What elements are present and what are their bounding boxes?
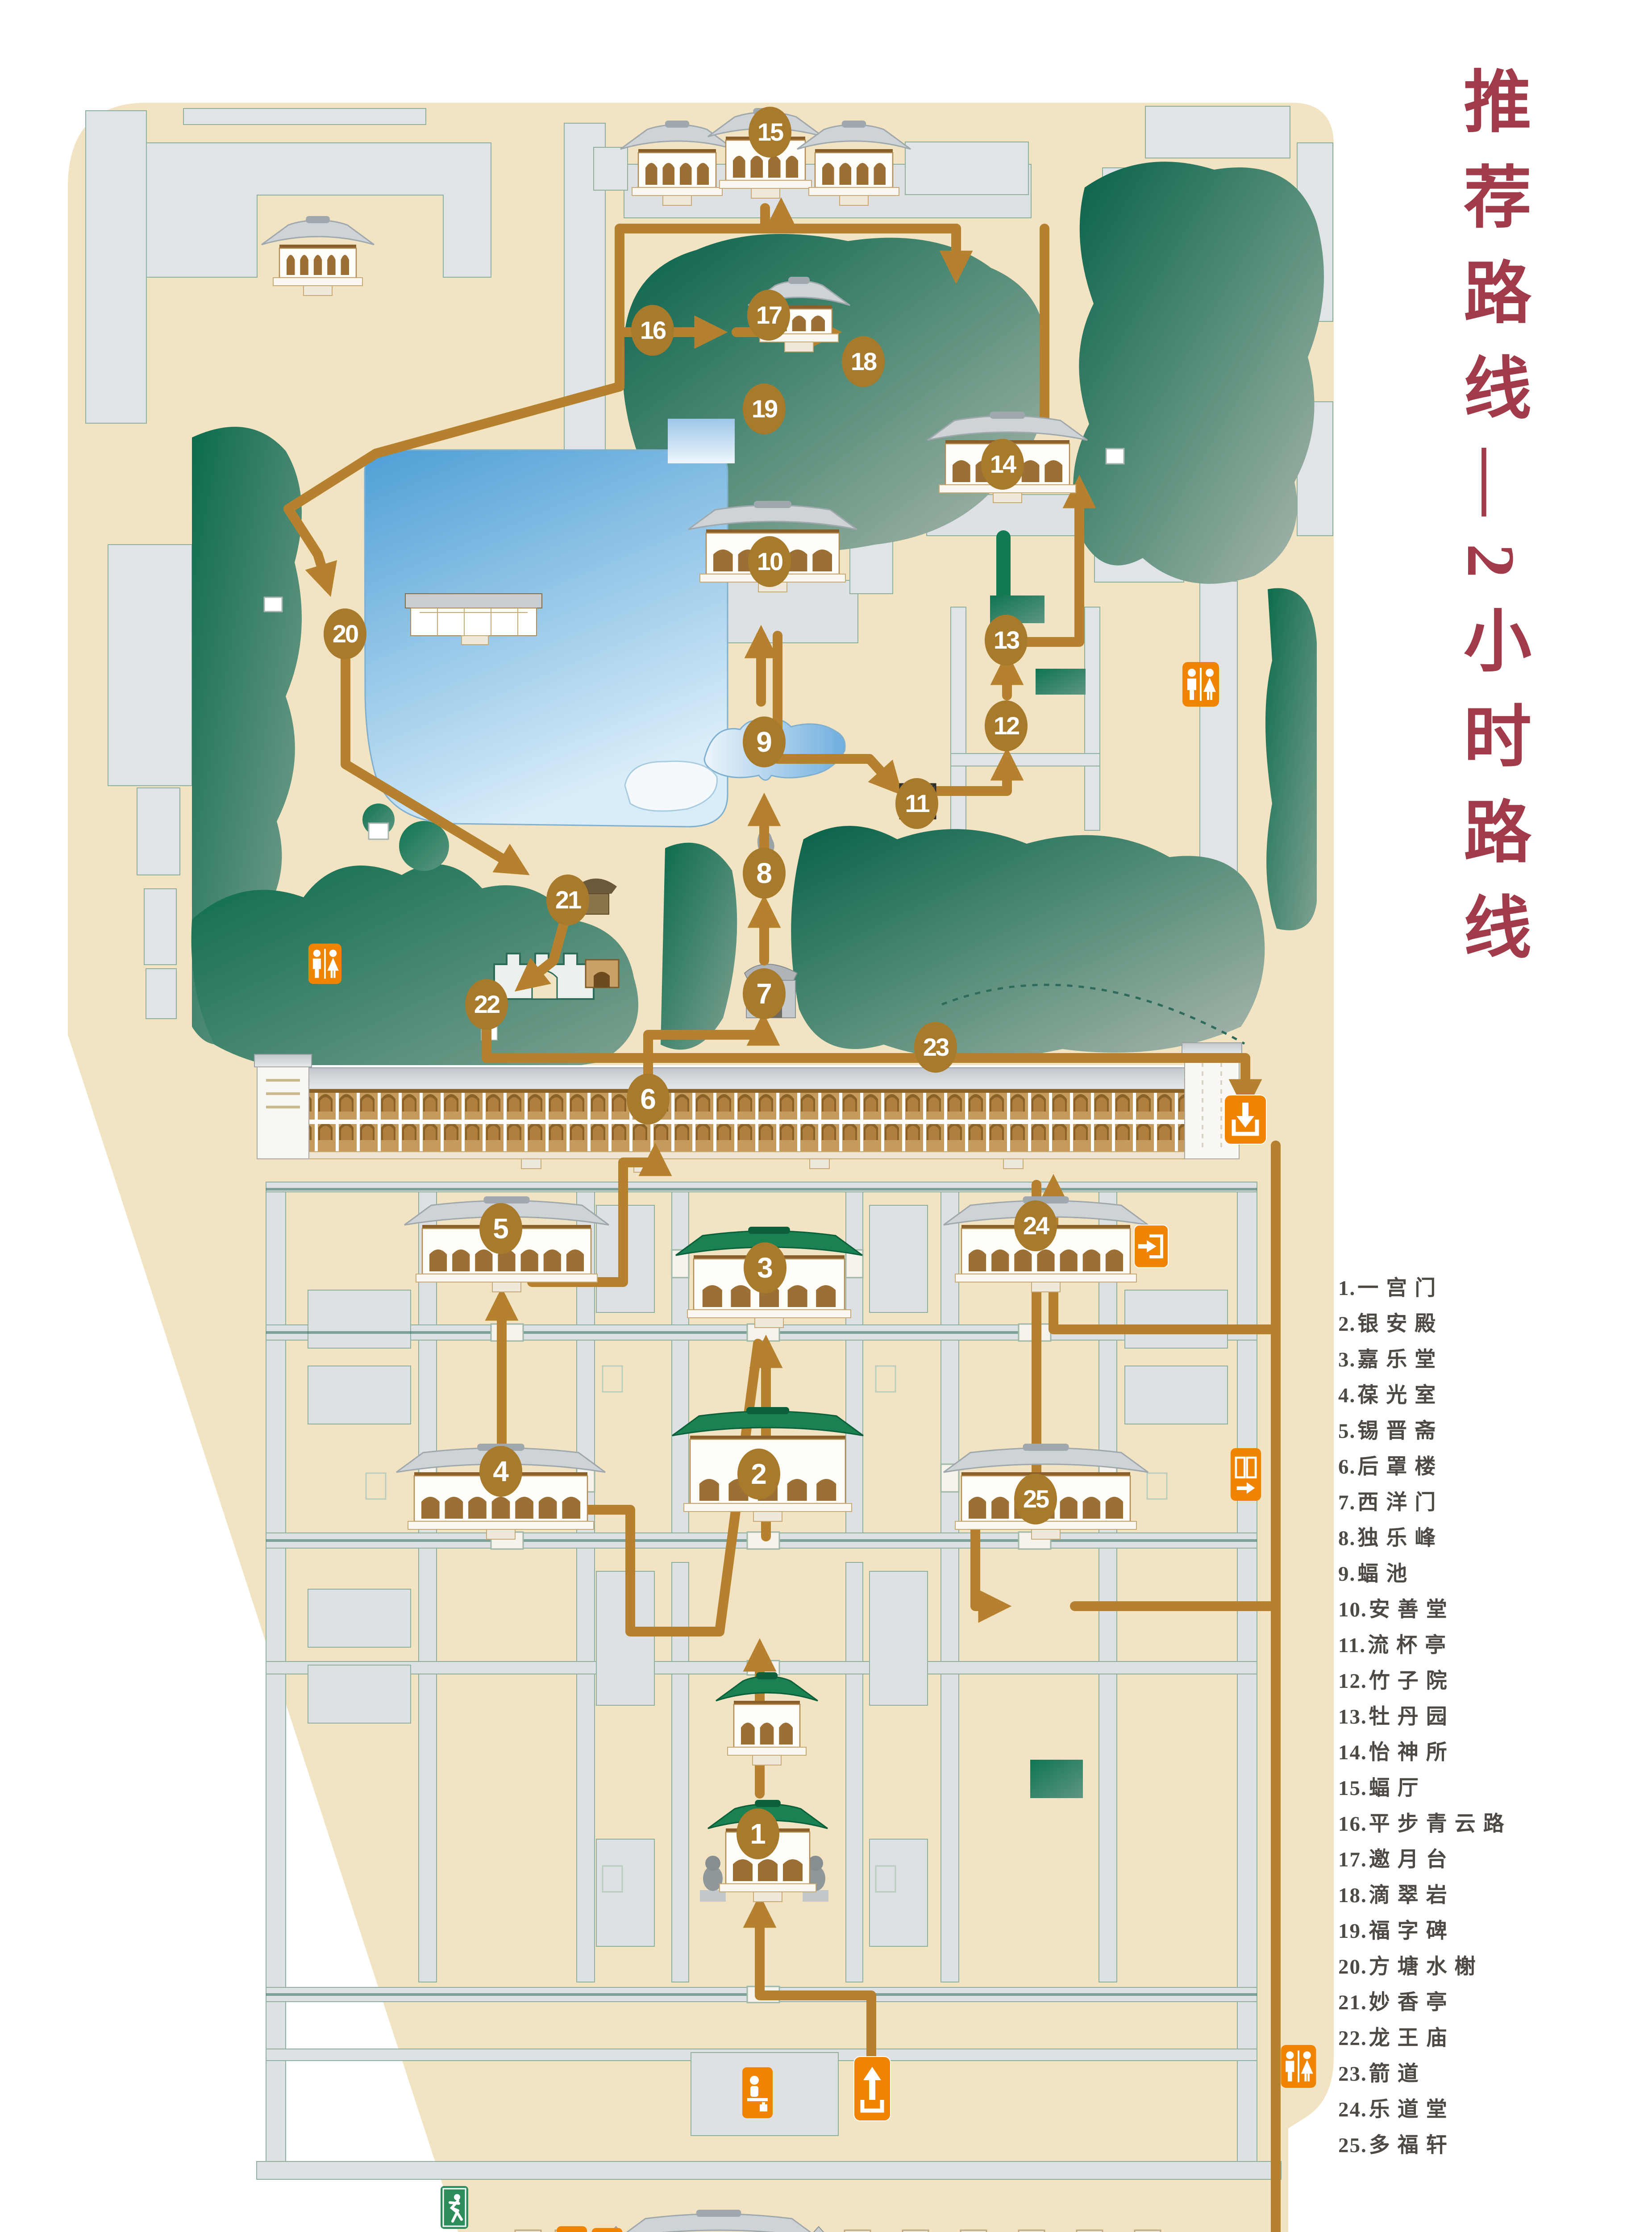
legend-name: 箭道 — [1369, 2062, 1426, 2086]
legend-item-24: 24.乐道堂 — [1338, 2092, 1512, 2128]
legend-number: 21. — [1338, 1991, 1367, 2014]
legend-item-21: 21.妙香亭 — [1338, 1985, 1512, 2020]
legend-item-23: 23.箭道 — [1338, 2056, 1512, 2092]
exit-northeast-icon — [1224, 1095, 1267, 1145]
legend-name: 龙王庙 — [1369, 2027, 1455, 2050]
legend-name: 蝠厅 — [1369, 1777, 1426, 1800]
route-marker-7: 7 — [743, 968, 786, 1019]
legend-number: 9. — [1338, 1562, 1356, 1586]
route-marker-22: 22 — [465, 979, 508, 1030]
legend-name: 蝠池 — [1357, 1562, 1415, 1586]
legend-number: 24. — [1338, 2098, 1367, 2121]
legend-name: 嘉乐堂 — [1357, 1348, 1443, 1371]
toilet-icon-southeast — [1280, 2045, 1317, 2088]
legend-number: 17. — [1338, 1848, 1367, 1871]
legend-name: 独乐峰 — [1357, 1527, 1443, 1550]
legend-number: 23. — [1338, 2062, 1367, 2086]
toilet-icon-west-garden — [308, 943, 342, 985]
legend-item-16: 16.平步青云路 — [1338, 1806, 1512, 1842]
route-title: 推荐路线—2小时路线 — [1428, 66, 1540, 1160]
legend-number: 20. — [1338, 1955, 1367, 1978]
legend-item-17: 17.邀月台 — [1338, 1842, 1512, 1878]
legend-item-4: 4.葆光室 — [1338, 1378, 1512, 1413]
legend-name: 牡丹园 — [1369, 1705, 1455, 1728]
toilet-icon-east-garden — [1182, 662, 1219, 707]
legend-name: 乐道堂 — [1369, 2098, 1455, 2121]
legend-item-25: 25.多福轩 — [1338, 2128, 1512, 2163]
route-marker-2: 2 — [737, 1449, 780, 1499]
legend-name: 滴翠岩 — [1369, 1884, 1455, 1907]
route-marker-12: 12 — [985, 700, 1028, 751]
legend-item-7: 7.西洋门 — [1338, 1485, 1512, 1520]
route-marker-15: 15 — [749, 107, 791, 158]
route-marker-1: 1 — [737, 1808, 779, 1859]
legend-name: 西洋门 — [1357, 1491, 1443, 1514]
legend-name: 安善堂 — [1369, 1598, 1455, 1621]
legend-number: 15. — [1338, 1777, 1367, 1800]
legend-item-18: 18.滴翠岩 — [1338, 1878, 1512, 1913]
legend-name: 一宫门 — [1357, 1277, 1443, 1300]
legend-item-22: 22.龙王庙 — [1338, 2020, 1512, 2056]
legend-item-14: 14.怡神所 — [1338, 1735, 1512, 1770]
legend-name: 多福轩 — [1369, 2134, 1455, 2157]
exit-door-icon — [591, 2228, 623, 2232]
route-marker-16: 16 — [631, 305, 674, 356]
legend-item-19: 19.福字碑 — [1338, 1913, 1512, 1949]
legend-item-6: 6.后罩楼 — [1338, 1449, 1512, 1485]
route-marker-17: 17 — [747, 290, 790, 341]
exit-east-icon — [1134, 1224, 1169, 1269]
legend-list: 1.一宫门2.银安殿3.嘉乐堂4.葆光室5.锡晋斋6.后罩楼7.西洋门8.独乐峰… — [1338, 1270, 1512, 2163]
legend-number: 12. — [1338, 1670, 1367, 1693]
route-marker-9: 9 — [743, 716, 786, 767]
legend-name: 邀月台 — [1369, 1848, 1455, 1871]
route-marker-21: 21 — [546, 874, 589, 925]
route-marker-3: 3 — [744, 1242, 786, 1293]
route-marker-13: 13 — [985, 615, 1028, 666]
legend-name: 葆光室 — [1357, 1384, 1443, 1407]
legend-item-2: 2.银安殿 — [1338, 1306, 1512, 1342]
palace-route-map-page: 1234567891011121314151617181920212223242… — [0, 0, 1652, 2232]
legend-number: 2. — [1338, 1312, 1356, 1336]
legend-number: 25. — [1338, 2134, 1367, 2157]
route-marker-5: 5 — [479, 1203, 522, 1254]
legend-item-1: 1.一宫门 — [1338, 1270, 1512, 1306]
legend-number: 19. — [1338, 1920, 1367, 1943]
route-marker-24: 24 — [1014, 1200, 1057, 1251]
legend-item-20: 20.方塘水榭 — [1338, 1949, 1512, 1985]
door-east-icon — [1230, 1445, 1261, 1503]
route-marker-8: 8 — [743, 848, 786, 899]
legend-name: 怡神所 — [1369, 1741, 1455, 1764]
route-marker-6: 6 — [627, 1074, 670, 1124]
legend-number: 14. — [1338, 1741, 1367, 1764]
legend-number: 22. — [1338, 2027, 1367, 2050]
legend-item-13: 13.牡丹园 — [1338, 1699, 1512, 1735]
legend-item-9: 9.蝠池 — [1338, 1556, 1512, 1592]
legend-number: 13. — [1338, 1705, 1367, 1728]
emergency-exit-icon — [440, 2186, 469, 2229]
legend-number: 11. — [1338, 1634, 1366, 1657]
legend-item-15: 15.蝠厅 — [1338, 1770, 1512, 1806]
legend-name: 妙香亭 — [1369, 1991, 1455, 2014]
legend-item-10: 10.安善堂 — [1338, 1592, 1512, 1628]
route-marker-18: 18 — [842, 336, 885, 387]
route-marker-20: 20 — [324, 608, 366, 659]
legend-number: 10. — [1338, 1598, 1367, 1621]
route-marker-19: 19 — [743, 383, 786, 434]
legend-item-8: 8.独乐峰 — [1338, 1520, 1512, 1556]
legend-number: 3. — [1338, 1348, 1356, 1371]
legend-name: 后罩楼 — [1357, 1455, 1443, 1478]
legend-number: 6. — [1338, 1455, 1356, 1478]
legend-number: 18. — [1338, 1884, 1367, 1907]
legend-item-5: 5.锡晋斋 — [1338, 1413, 1512, 1449]
legend-number: 4. — [1338, 1384, 1356, 1407]
route-marker-23: 23 — [914, 1022, 957, 1073]
legend-name: 福字碑 — [1369, 1920, 1455, 1943]
route-marker-11: 11 — [895, 778, 938, 829]
legend-number: 1. — [1338, 1277, 1356, 1300]
legend-name: 流杯亭 — [1368, 1634, 1453, 1657]
legend-name: 平步青云路 — [1369, 1812, 1512, 1836]
legend-number: 7. — [1338, 1491, 1356, 1514]
legend-number: 8. — [1338, 1527, 1356, 1550]
route-marker-10: 10 — [748, 536, 791, 587]
legend-item-11: 11.流杯亭 — [1338, 1628, 1512, 1663]
legend-item-12: 12.竹子院 — [1338, 1663, 1512, 1699]
ticket-office-icon — [742, 2067, 773, 2119]
legend-number: 5. — [1338, 1420, 1356, 1443]
legend-number: 16. — [1338, 1812, 1367, 1836]
legend-name: 竹子院 — [1369, 1670, 1455, 1693]
legend-name: 方塘水榭 — [1369, 1955, 1483, 1978]
legend-item-3: 3.嘉乐堂 — [1338, 1342, 1512, 1378]
route-marker-25: 25 — [1014, 1474, 1057, 1524]
route-marker-14: 14 — [981, 439, 1024, 490]
entrance-icon — [853, 2056, 891, 2121]
legend-name: 银安殿 — [1357, 1312, 1443, 1336]
service-icon — [556, 2226, 587, 2232]
route-marker-4: 4 — [479, 1446, 522, 1497]
legend-name: 锡晋斋 — [1357, 1420, 1443, 1443]
